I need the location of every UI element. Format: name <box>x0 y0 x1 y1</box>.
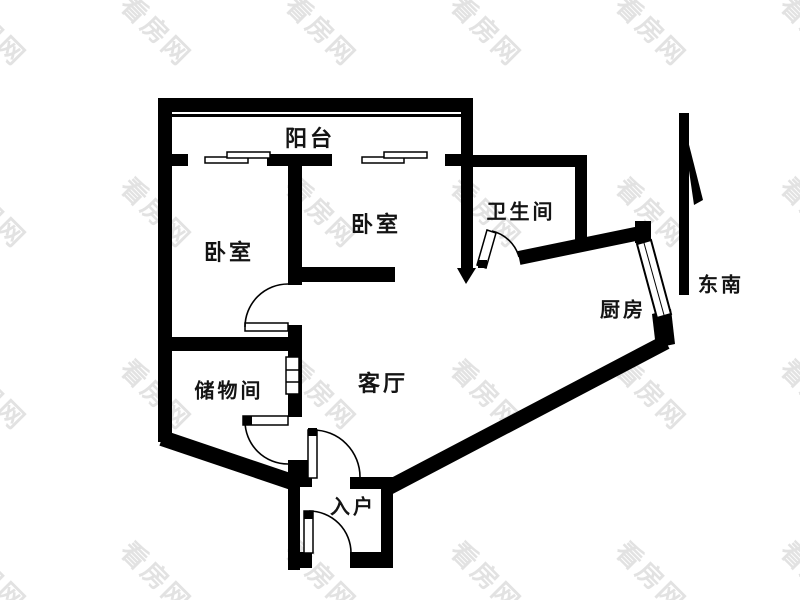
storage-label: 储物间 <box>195 375 264 404</box>
kitchen-label: 厨房 <box>600 294 646 323</box>
compass-label: 东南 <box>698 269 744 298</box>
living-room-label: 客厅 <box>358 366 408 398</box>
balcony-label: 阳台 <box>285 121 335 153</box>
bedroom-left-label: 卧室 <box>204 235 254 267</box>
bathroom-label: 卫生间 <box>487 196 556 225</box>
floor-plan-page: 看房网 看房网 看房网 看房网 看房网 看房网 看房网 看房网 看房网 看房网 … <box>0 0 800 600</box>
entry-label: 入户 <box>330 491 376 520</box>
bedroom-right-label: 卧室 <box>351 207 401 239</box>
room-labels: 阳台 卧室 卧室 卫生间 厨房 储物间 客厅 入户 东南 <box>0 0 800 600</box>
